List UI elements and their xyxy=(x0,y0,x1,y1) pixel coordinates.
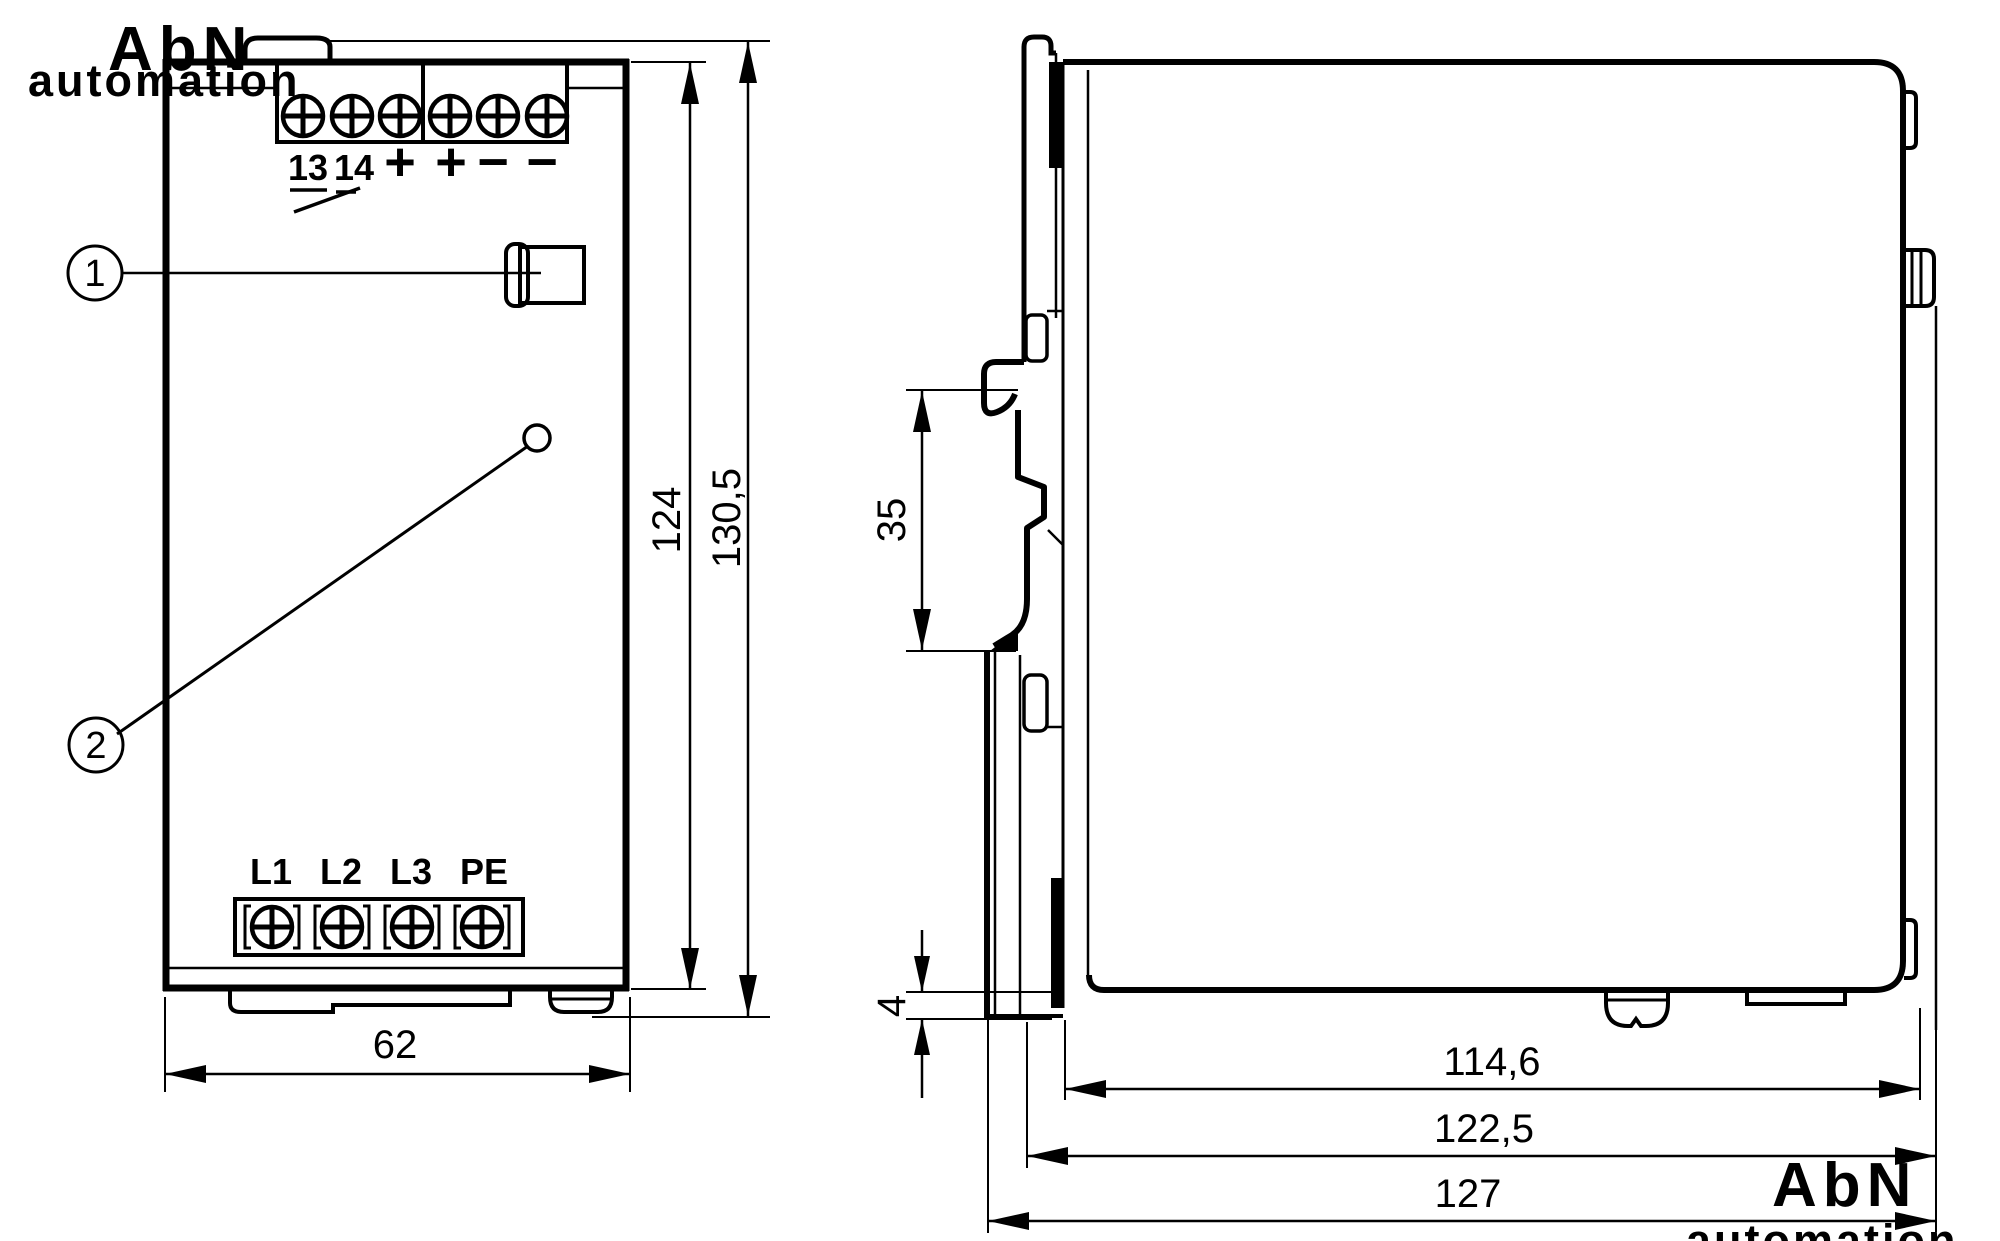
terminal-label: PE xyxy=(460,851,508,892)
front-foot-screw xyxy=(550,990,612,1012)
terminal-label: L3 xyxy=(390,851,432,892)
rail-latch-top xyxy=(1026,315,1047,361)
side-hinge-knuckle xyxy=(1904,250,1934,306)
drawing-canvas: AbN automation AbN automation xyxy=(0,0,2000,1241)
terminal-screw xyxy=(252,907,292,947)
terminal-screw xyxy=(462,907,502,947)
dim-label: 124 xyxy=(645,487,689,554)
callout-number: 1 xyxy=(84,253,105,295)
watermark-bottom-right: AbN automation xyxy=(1686,1151,1959,1241)
terminal-label: + xyxy=(384,132,416,192)
side-foot-tab xyxy=(1747,991,1845,1004)
terminal-label: 14 xyxy=(334,147,374,188)
dim-depth-114-6: 114,6 xyxy=(1065,1008,1920,1100)
terminal-screw xyxy=(332,96,372,136)
terminal-label: 13 xyxy=(288,147,328,188)
voltage-adjuster xyxy=(506,244,584,306)
front-bottom-terminal-block: L1 L2 L3 PE xyxy=(235,851,523,955)
terminal-screw xyxy=(380,96,420,136)
callout-2: 2 xyxy=(69,446,528,772)
side-mounting-plate xyxy=(1024,37,1063,362)
terminal-label: − xyxy=(526,132,558,192)
dim-label: 122,5 xyxy=(1434,1107,1534,1151)
terminal-screw xyxy=(478,96,518,136)
dim-rail-35: 35 xyxy=(870,390,1018,651)
side-foot-screw xyxy=(1606,991,1668,1026)
front-view: 13 14 + + − − 1 2 xyxy=(68,38,770,1092)
dim-body-height-124: 124 xyxy=(631,62,706,989)
terminal-label: − xyxy=(477,132,509,192)
dim-label: 114,6 xyxy=(1443,1040,1540,1084)
front-bottom-feet xyxy=(230,990,612,1012)
dim-label: 4 xyxy=(870,995,914,1017)
terminal-screw xyxy=(283,96,323,136)
dim-label: 130,5 xyxy=(705,468,749,568)
side-housing xyxy=(1063,62,1936,1030)
terminal-screw xyxy=(430,96,470,136)
terminal-label: L2 xyxy=(320,851,362,892)
callout-1: 1 xyxy=(68,246,541,300)
terminal-screw xyxy=(527,96,567,136)
rail-latch-bottom xyxy=(1024,675,1047,731)
terminal-screw xyxy=(392,907,432,947)
din-rail-clip xyxy=(984,362,1063,1016)
terminal-label: L1 xyxy=(250,851,292,892)
terminal-label: + xyxy=(435,132,467,192)
callout-number: 2 xyxy=(85,725,106,767)
dim-label: 62 xyxy=(373,1023,418,1067)
terminal-screw xyxy=(322,907,362,947)
side-view: 35 4 114,6 122,5 xyxy=(870,37,1936,1233)
dim-label: 127 xyxy=(1435,1172,1502,1216)
front-top-terminal-block xyxy=(277,62,567,142)
relay-contact-symbol xyxy=(290,188,360,212)
dimensional-drawing: AbN automation AbN automation xyxy=(0,0,2000,1241)
dim-label: 35 xyxy=(870,498,914,543)
